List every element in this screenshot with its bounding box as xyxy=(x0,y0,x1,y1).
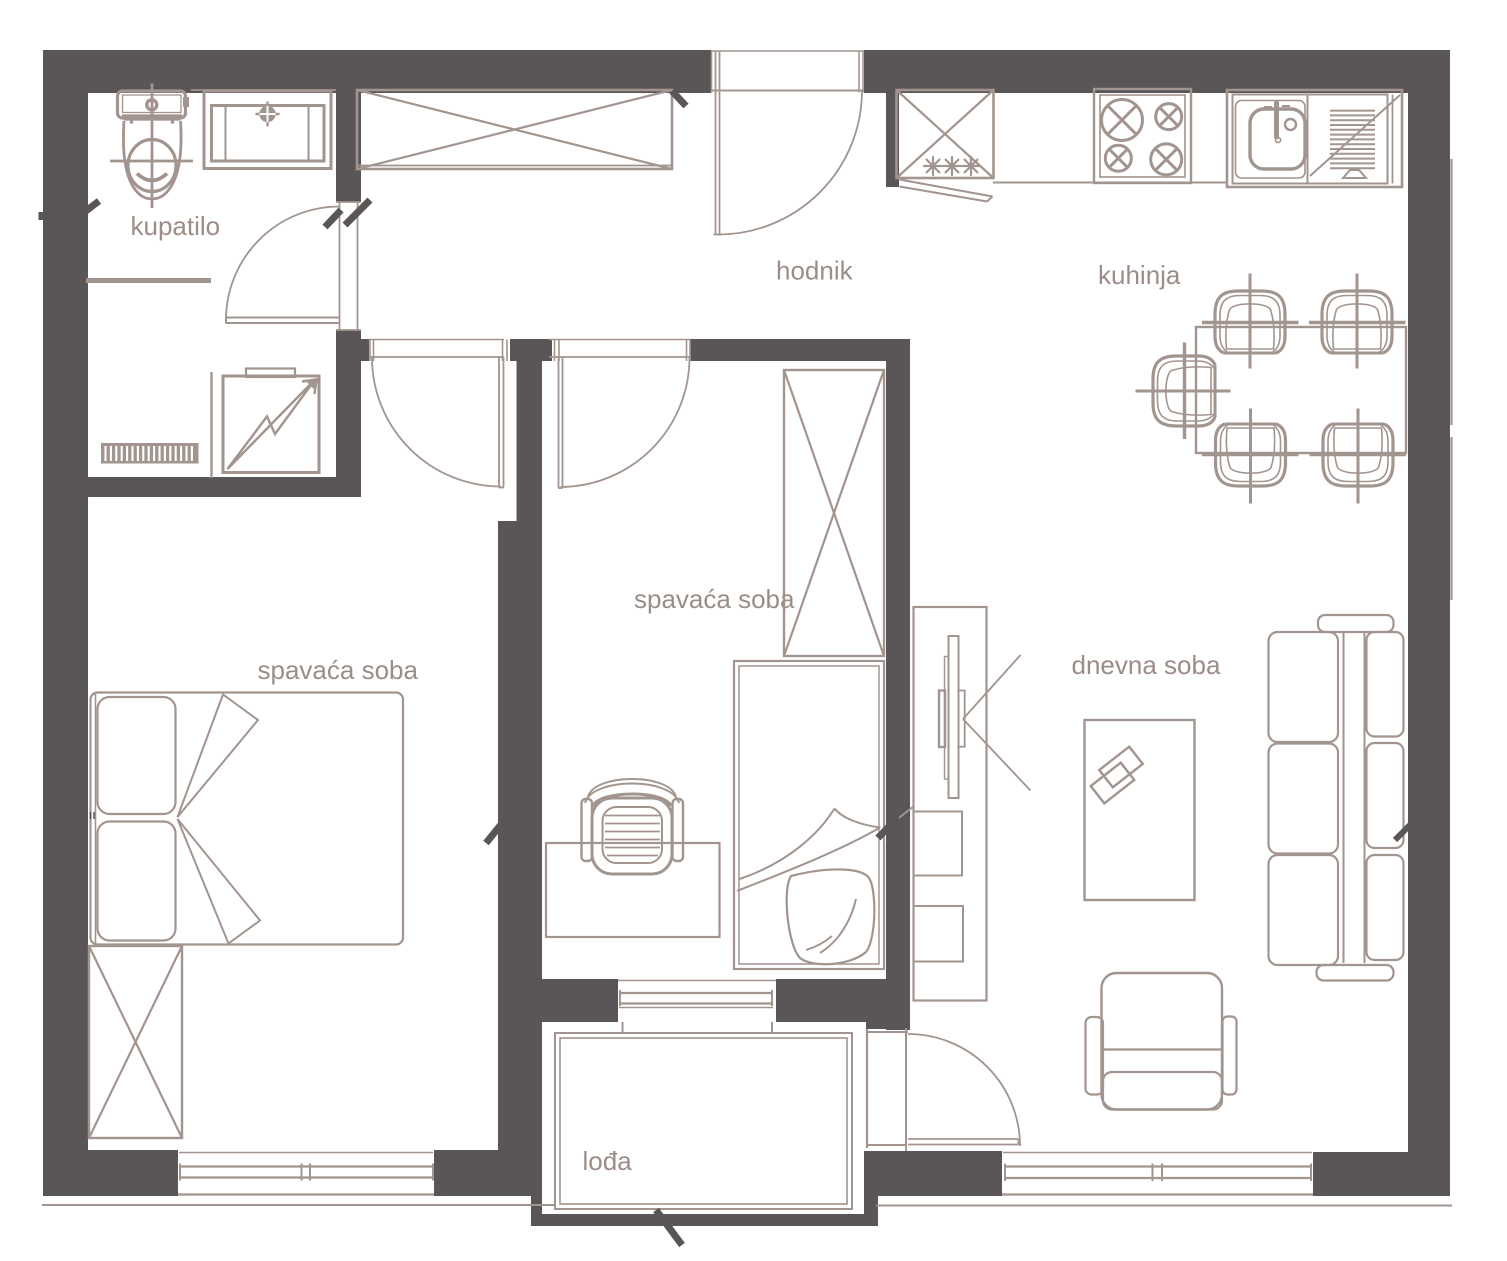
svg-text:spavaća soba: spavaća soba xyxy=(634,584,795,614)
svg-text:kuhinja: kuhinja xyxy=(1098,260,1181,290)
svg-text:kupatilo: kupatilo xyxy=(131,211,221,241)
svg-text:spavaća soba: spavaća soba xyxy=(258,655,419,685)
svg-text:dnevna soba: dnevna soba xyxy=(1072,650,1221,680)
svg-text:lođa: lođa xyxy=(583,1146,633,1176)
svg-text:hodnik: hodnik xyxy=(776,256,854,286)
